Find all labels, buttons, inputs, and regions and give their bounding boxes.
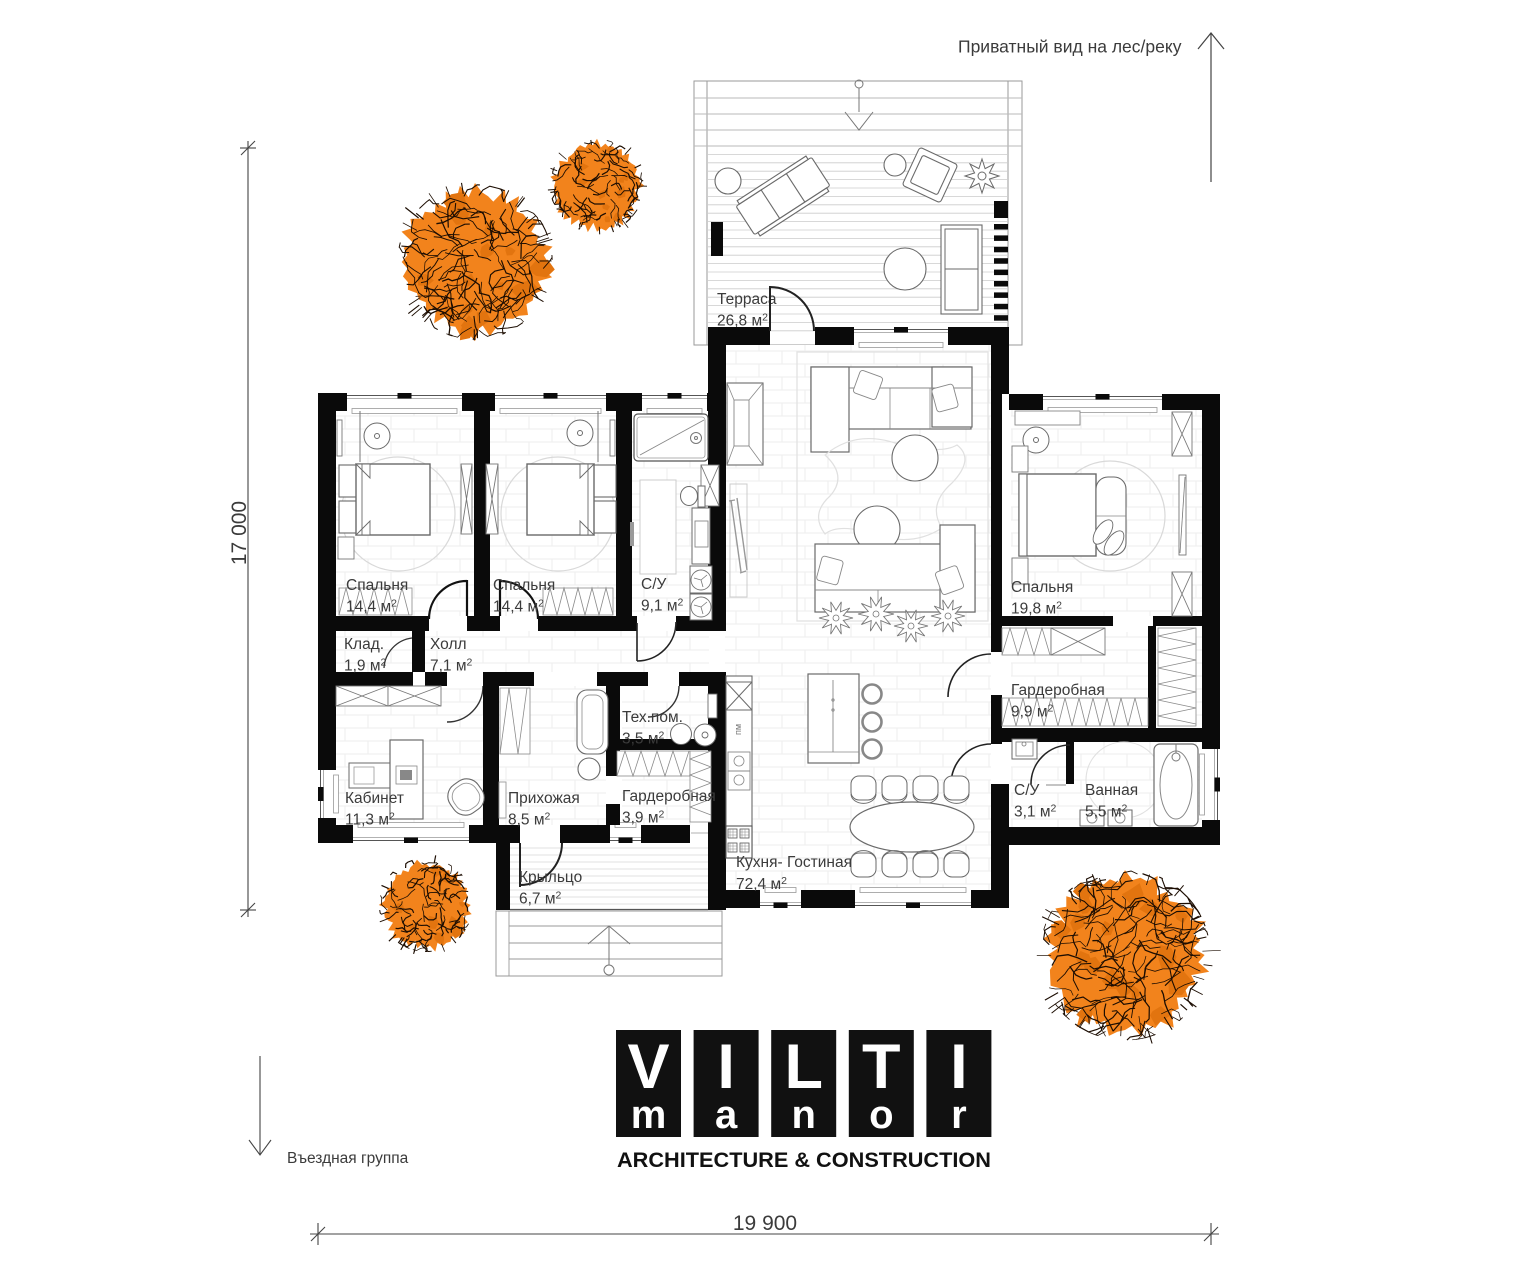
svg-text:Клад.: Клад. [344, 636, 384, 653]
svg-text:6,7 м2: 6,7 м2 [519, 890, 562, 908]
svg-text:Терраса: Терраса [717, 291, 777, 308]
svg-text:8,5 м2: 8,5 м2 [508, 811, 551, 829]
svg-text:o: o [869, 1093, 893, 1137]
svg-text:19,8 м2: 19,8 м2 [1011, 600, 1062, 618]
svg-text:пм: пм [733, 724, 743, 735]
svg-text:Крыльцо: Крыльцо [519, 869, 582, 886]
svg-text:Въездная группа: Въездная группа [287, 1150, 409, 1167]
svg-text:Гардеробная: Гардеробная [622, 788, 716, 805]
svg-text:9,9 м2: 9,9 м2 [1011, 703, 1054, 721]
svg-text:7,1 м2: 7,1 м2 [430, 657, 473, 675]
svg-text:Тех.пом.: Тех.пом. [622, 709, 683, 726]
svg-text:Холл: Холл [430, 636, 467, 653]
svg-text:17 000: 17 000 [228, 501, 251, 565]
svg-text:V: V [627, 1032, 669, 1102]
svg-text:Ванная: Ванная [1085, 782, 1138, 799]
svg-text:a: a [715, 1093, 738, 1137]
svg-text:Прихожая: Прихожая [508, 790, 580, 807]
svg-text:Гардеробная: Гардеробная [1011, 682, 1105, 699]
svg-text:Кухня- Гостиная: Кухня- Гостиная [736, 854, 852, 871]
svg-text:L: L [784, 1032, 822, 1102]
svg-text:r: r [951, 1093, 967, 1137]
svg-text:С/У: С/У [641, 576, 667, 593]
svg-text:14,4 м2: 14,4 м2 [493, 598, 544, 616]
svg-text:Спальня: Спальня [493, 577, 555, 594]
svg-text:14,4 м2: 14,4 м2 [346, 598, 397, 616]
svg-text:I: I [717, 1032, 735, 1102]
svg-text:3,9 м2: 3,9 м2 [622, 809, 665, 827]
svg-text:72,4 м2: 72,4 м2 [736, 875, 787, 893]
svg-text:Приватный вид на лес/реку: Приватный вид на лес/реку [958, 37, 1182, 57]
svg-text:T: T [862, 1032, 900, 1102]
svg-text:3,5 м2: 3,5 м2 [622, 730, 665, 748]
svg-text:3,1 м2: 3,1 м2 [1014, 803, 1057, 821]
svg-text:9,1 м2: 9,1 м2 [641, 597, 684, 615]
svg-text:С/У: С/У [1014, 782, 1040, 799]
svg-text:19 900: 19 900 [733, 1212, 797, 1235]
svg-text:Спальня: Спальня [1011, 579, 1073, 596]
svg-text:Спальня: Спальня [346, 577, 408, 594]
svg-text:Кабинет: Кабинет [345, 790, 404, 807]
svg-text:I: I [950, 1032, 968, 1102]
svg-text:11,3 м2: 11,3 м2 [345, 811, 395, 829]
svg-text:n: n [791, 1093, 815, 1137]
svg-text:m: m [631, 1093, 667, 1137]
svg-text:26,8 м2: 26,8 м2 [717, 312, 768, 330]
svg-text:1,9 м2: 1,9 м2 [344, 657, 387, 675]
svg-text:ARCHITECTURE & CONSTRUCTION: ARCHITECTURE & CONSTRUCTION [617, 1148, 991, 1172]
svg-text:5,5 м2: 5,5 м2 [1085, 803, 1128, 821]
